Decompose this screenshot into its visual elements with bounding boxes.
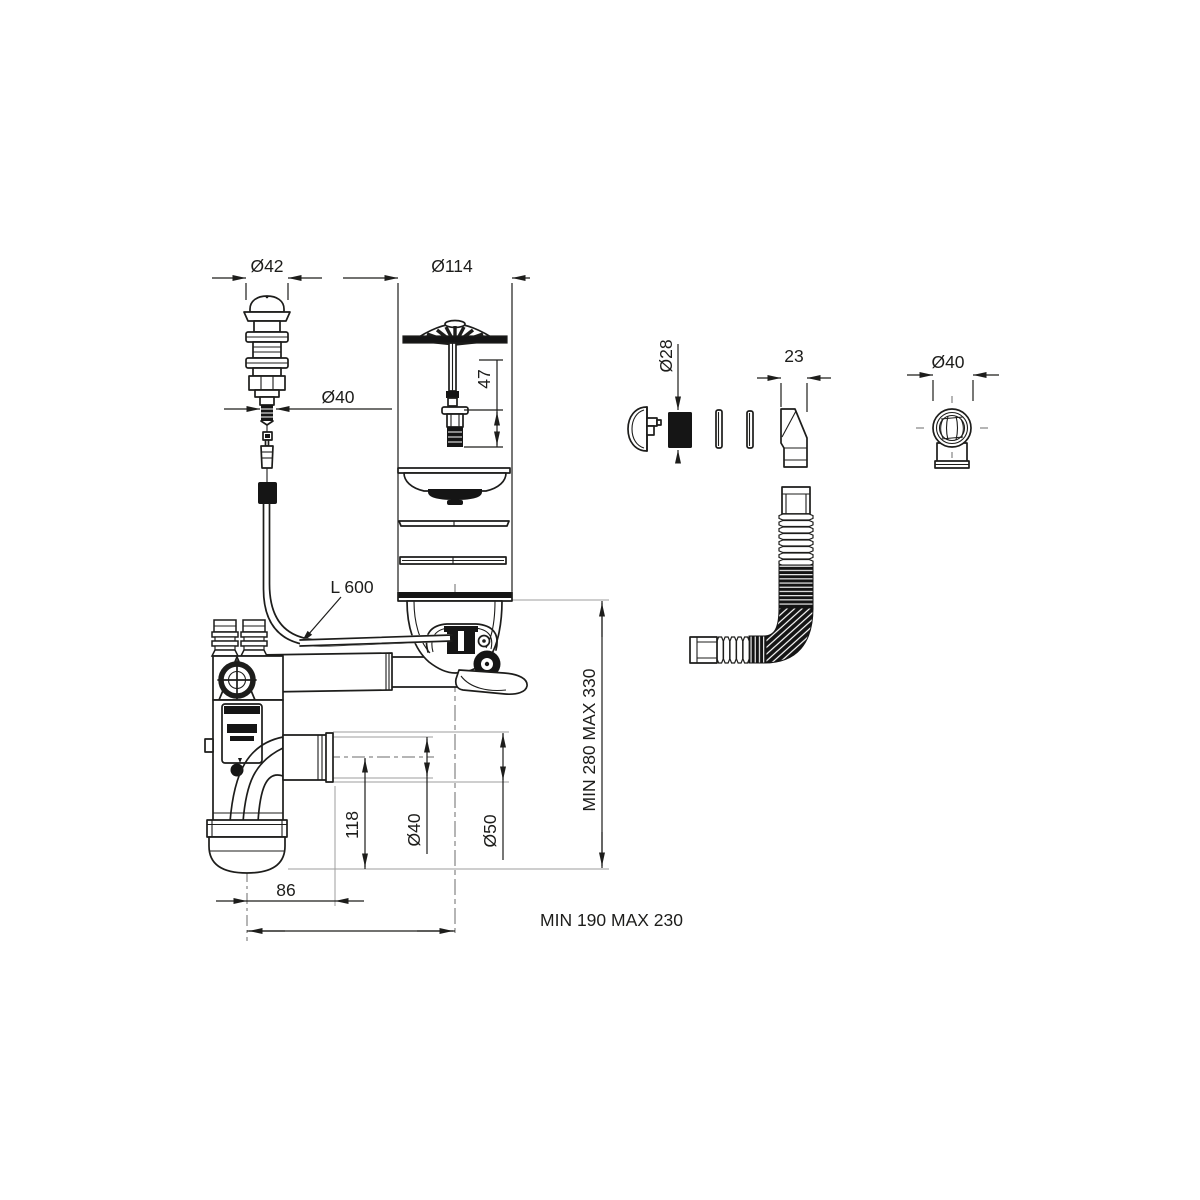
dim-waste-pipe-end-diameter: Ø50 — [480, 733, 503, 860]
gasket-strip-left — [716, 410, 722, 448]
label-trap-cup-offset: 86 — [276, 880, 295, 900]
dim-trap-cup-offset: 86 — [216, 880, 364, 901]
label-outlet-drop-height: 118 — [342, 811, 362, 839]
dim-overflow-nozzle-width: 23 — [757, 346, 831, 412]
overflow-bushing — [668, 412, 692, 448]
overflow-cap-side — [628, 407, 661, 451]
label-strainer-diameter: Ø114 — [431, 256, 473, 276]
label-knob-cap-diameter: Ø42 — [250, 256, 283, 276]
technical-drawing-sheet: Ø42 Ø40 L 600 — [0, 0, 1200, 1200]
dim-locking-bolt-height: 47 — [464, 360, 503, 447]
flat-gasket-upper — [399, 521, 509, 526]
label-elbow-outlet-diameter: Ø40 — [931, 352, 964, 372]
strainer-basket — [403, 321, 507, 407]
overflow-nozzle — [781, 409, 807, 467]
trap-outlet-stub — [283, 733, 333, 782]
dim-strainer-diameter: Ø114 — [343, 256, 530, 591]
dishwasher-inlet-left — [212, 620, 238, 656]
label-cable-length: L 600 — [330, 577, 373, 597]
dim-vertical-adjust-range: MIN 280 MAX 330 — [579, 601, 602, 868]
hose-elbow-fitting — [916, 396, 988, 468]
sink-waste-kit-drawing: Ø42 Ø40 L 600 — [0, 0, 1200, 1200]
remote-pop-up-knob — [244, 296, 290, 425]
flexible-hose — [690, 487, 813, 663]
label-waste-pipe-end-diameter: Ø50 — [480, 814, 500, 847]
label-overflow-bushing-diameter: Ø28 — [656, 339, 676, 372]
flat-gasket-lower — [400, 557, 506, 564]
dishwasher-inlet-right — [241, 620, 267, 656]
label-knob-tail-diameter: Ø40 — [321, 387, 354, 407]
trap-cup — [207, 820, 287, 873]
strainer-locking-bolt — [442, 407, 468, 447]
label-vertical-adjust-range: MIN 280 MAX 330 — [579, 668, 599, 811]
dim-knob-cap-diameter: Ø42 — [212, 256, 322, 300]
label-locking-bolt-height: 47 — [474, 369, 494, 388]
label-overflow-nozzle-width: 23 — [784, 346, 803, 366]
strainer-flange — [398, 468, 510, 505]
label-horizontal-adjust-range: MIN 190 MAX 230 — [540, 910, 683, 930]
dim-elbow-outlet-diameter: Ø40 — [907, 352, 999, 401]
label-waste-pipe-diameter: Ø40 — [404, 813, 424, 846]
dim-cable-length: L 600 — [301, 577, 374, 643]
dim-outlet-drop-height: 118 — [342, 758, 365, 869]
brand-badge — [222, 704, 262, 763]
dim-waste-pipe-diameter: Ø40 — [404, 737, 427, 854]
gasket-strip-right — [747, 411, 753, 448]
dim-horizontal-adjust-range: MIN 190 MAX 230 — [247, 910, 683, 931]
